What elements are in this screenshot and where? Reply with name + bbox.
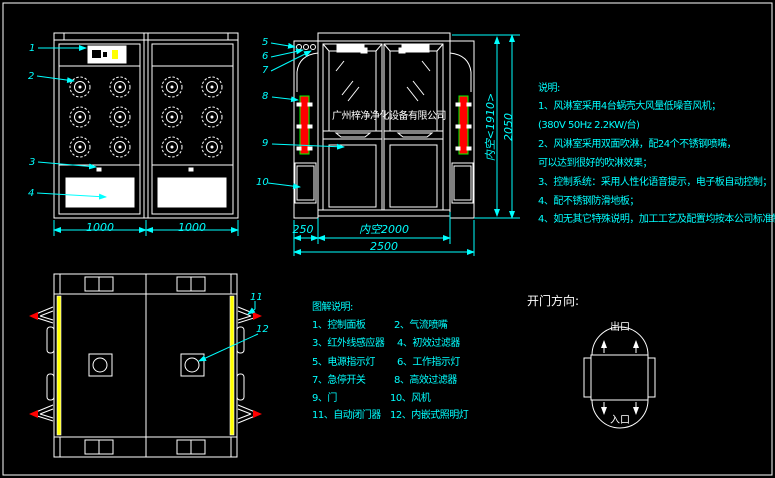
callout-5: 5 (262, 37, 268, 48)
legend-item-1: 1、控制面板 (312, 320, 365, 331)
door-strip-right (230, 296, 234, 435)
entrance-label: 入口 (598, 415, 642, 426)
door-swing (238, 405, 262, 423)
legend-item-10: 10、风机 (390, 393, 430, 404)
dim-inner-2000: 内空2000 (334, 224, 434, 236)
door-swing (29, 405, 53, 421)
door-handle (336, 133, 370, 137)
callout-2: 2 (28, 71, 34, 82)
door-swing (29, 307, 53, 323)
legend-title: 图解说明: (312, 302, 353, 313)
fan-top (85, 277, 99, 291)
callout-6: 6 (262, 51, 268, 62)
ceiling-lamp (89, 354, 112, 376)
legend-item-8: 8、高效过滤器 (394, 375, 457, 386)
door-strip-left (57, 296, 61, 435)
company-watermark: 广州梓净净化设备有限公司 (326, 111, 452, 122)
primary-filter (66, 178, 134, 207)
fan-box (452, 163, 473, 203)
legend-item-7: 7、急停开关 (312, 375, 365, 386)
door-handle (398, 133, 432, 137)
legend-item-4: 4、初效过滤器 (397, 338, 460, 349)
dim-inner-height: 内空<1910> (485, 93, 497, 161)
door-direction-title: 开门方向: (527, 295, 579, 308)
callout-1: 1 (29, 43, 35, 54)
fan-box (295, 163, 316, 203)
plan-view (29, 274, 262, 457)
fan-top (177, 277, 191, 291)
fan-bottom (177, 440, 191, 454)
door-direction-diagram (584, 327, 655, 428)
nozzle (70, 77, 90, 97)
dim-side-250: 250 (286, 224, 320, 236)
dim-total-2500: 2500 (334, 241, 434, 253)
legend-item-5: 5、电源指示灯 (312, 357, 375, 368)
door-swing (238, 307, 262, 323)
infrared-sensor-dot (189, 168, 193, 171)
indicator-light (311, 45, 316, 50)
legend-item-12: 12、内嵌式照明灯 (390, 410, 468, 421)
legend-item-9: 9、门 (312, 393, 337, 404)
door-leaf-left (323, 44, 382, 210)
callout-8: 8 (262, 91, 268, 102)
control-panel (88, 46, 126, 63)
cad-drawing: 1 2 3 4 5 6 7 8 9 10 11 12 1000 1000 250… (0, 0, 775, 478)
front-view-leaders (37, 48, 106, 197)
legend-item-3: 3、红外线感应器 (312, 338, 384, 349)
front-view (54, 33, 238, 218)
notes-line-1: 1、风淋室采用4台蜗壳大风量低噪音风机； (538, 101, 721, 112)
notes-title: 说明: (538, 83, 560, 94)
callout-11: 11 (250, 292, 263, 303)
callout-12: 12 (256, 324, 269, 335)
exit-label: 出口 (598, 322, 642, 333)
plan-view-leaders (199, 301, 258, 361)
notes-line-3: 2、风淋室采用双面吹淋，配24个不锈钢喷嘴， (538, 139, 736, 150)
door-leaf-right (384, 44, 443, 210)
callout-9: 9 (262, 138, 268, 149)
notes-line-7: 4、如无其它特殊说明，加工工艺及配置均按本公司标准制作. (538, 214, 775, 225)
indicator-light (297, 45, 302, 50)
sheet-border (3, 3, 772, 475)
dim-total-height: 2050 (503, 113, 515, 141)
ceiling-lamp (181, 354, 204, 376)
dim-front-right-1000: 1000 (164, 222, 220, 234)
callout-10: 10 (256, 177, 269, 188)
infrared-sensor-dot (97, 168, 101, 171)
legend-item-6: 6、工作指示灯 (397, 357, 460, 368)
notes-line-5: 3、控制系统：采用人性化语音提示，电子板自动控制； (538, 177, 772, 188)
side-view (294, 33, 474, 218)
callout-4: 4 (28, 188, 34, 199)
callout-3: 3 (29, 157, 35, 168)
notes-line-4: 可以达到很好的吹淋效果； (538, 158, 652, 169)
notes-line-6: 4、配不锈钢防滑地板； (538, 196, 639, 207)
nozzle-grid (70, 77, 222, 157)
legend-item-2: 2、气流喷嘴 (394, 320, 447, 331)
indicator-light (304, 45, 309, 50)
drawing-linework (0, 0, 775, 478)
callout-7: 7 (262, 65, 268, 76)
legend-item-11: 11、自动闭门器 (312, 410, 381, 421)
primary-filter (158, 178, 226, 207)
notes-line-2: (380V 50Hz 2.2KW/台) (538, 120, 639, 131)
dim-front-left-1000: 1000 (72, 222, 128, 234)
fan-bottom (85, 440, 99, 454)
